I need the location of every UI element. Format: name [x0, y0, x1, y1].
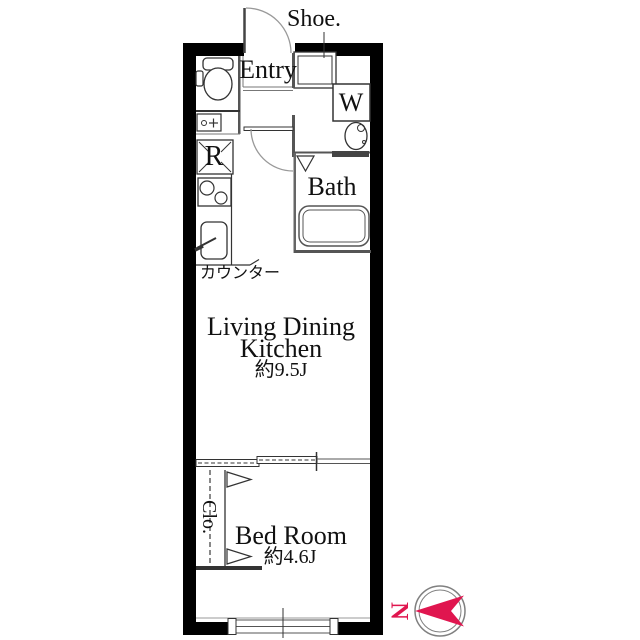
entry-door-arc [246, 8, 291, 53]
bath-wall-bottom [294, 250, 371, 253]
bathtub-outer [299, 206, 369, 246]
floorplan-canvas: Shoe. Entry W R Bath カウンター Living Dining… [0, 0, 640, 640]
bath-folding-door [297, 156, 314, 171]
label-washer: W [339, 90, 364, 116]
sliding-partition [196, 452, 370, 471]
label-compass-north: N [387, 602, 412, 620]
wall-bottom-left [183, 622, 228, 635]
entry-door [245, 8, 292, 53]
hall-door [244, 127, 293, 171]
toilet-bowl [204, 68, 232, 100]
shoe-cabinet-inner [298, 56, 332, 84]
wall-left [183, 43, 196, 635]
closet-bottom-wall [196, 566, 262, 570]
label-bedroom-area: 約4.6J [264, 547, 317, 567]
compass [415, 586, 465, 636]
label-entry: Entry [239, 57, 297, 83]
wall-bottom-right [338, 622, 383, 635]
hand-basin [196, 114, 240, 134]
label-shoe: Shoe. [287, 7, 341, 31]
bath-room [294, 151, 372, 253]
shoe-cabinet [294, 32, 336, 88]
bath-wall-left [294, 153, 297, 253]
closet-door-mark-top [227, 472, 251, 487]
label-ldk-area: 約9.5J [255, 360, 308, 380]
closet-door-mark-bottom [227, 549, 251, 564]
toilet-control-panel [196, 71, 203, 86]
wall-right [370, 43, 383, 635]
window-end-cap-left [228, 619, 236, 635]
kitchen-sink [201, 222, 227, 259]
label-closet: Clo. [199, 500, 219, 534]
label-bath: Bath [307, 174, 356, 200]
hall-door-arc [251, 129, 293, 171]
window-end-cap-right [330, 619, 338, 635]
label-counter: カウンター [200, 266, 280, 282]
bath-shelf-bar [332, 151, 369, 157]
hall-wall-lower [292, 115, 295, 157]
label-refrigerator: R [205, 143, 224, 171]
